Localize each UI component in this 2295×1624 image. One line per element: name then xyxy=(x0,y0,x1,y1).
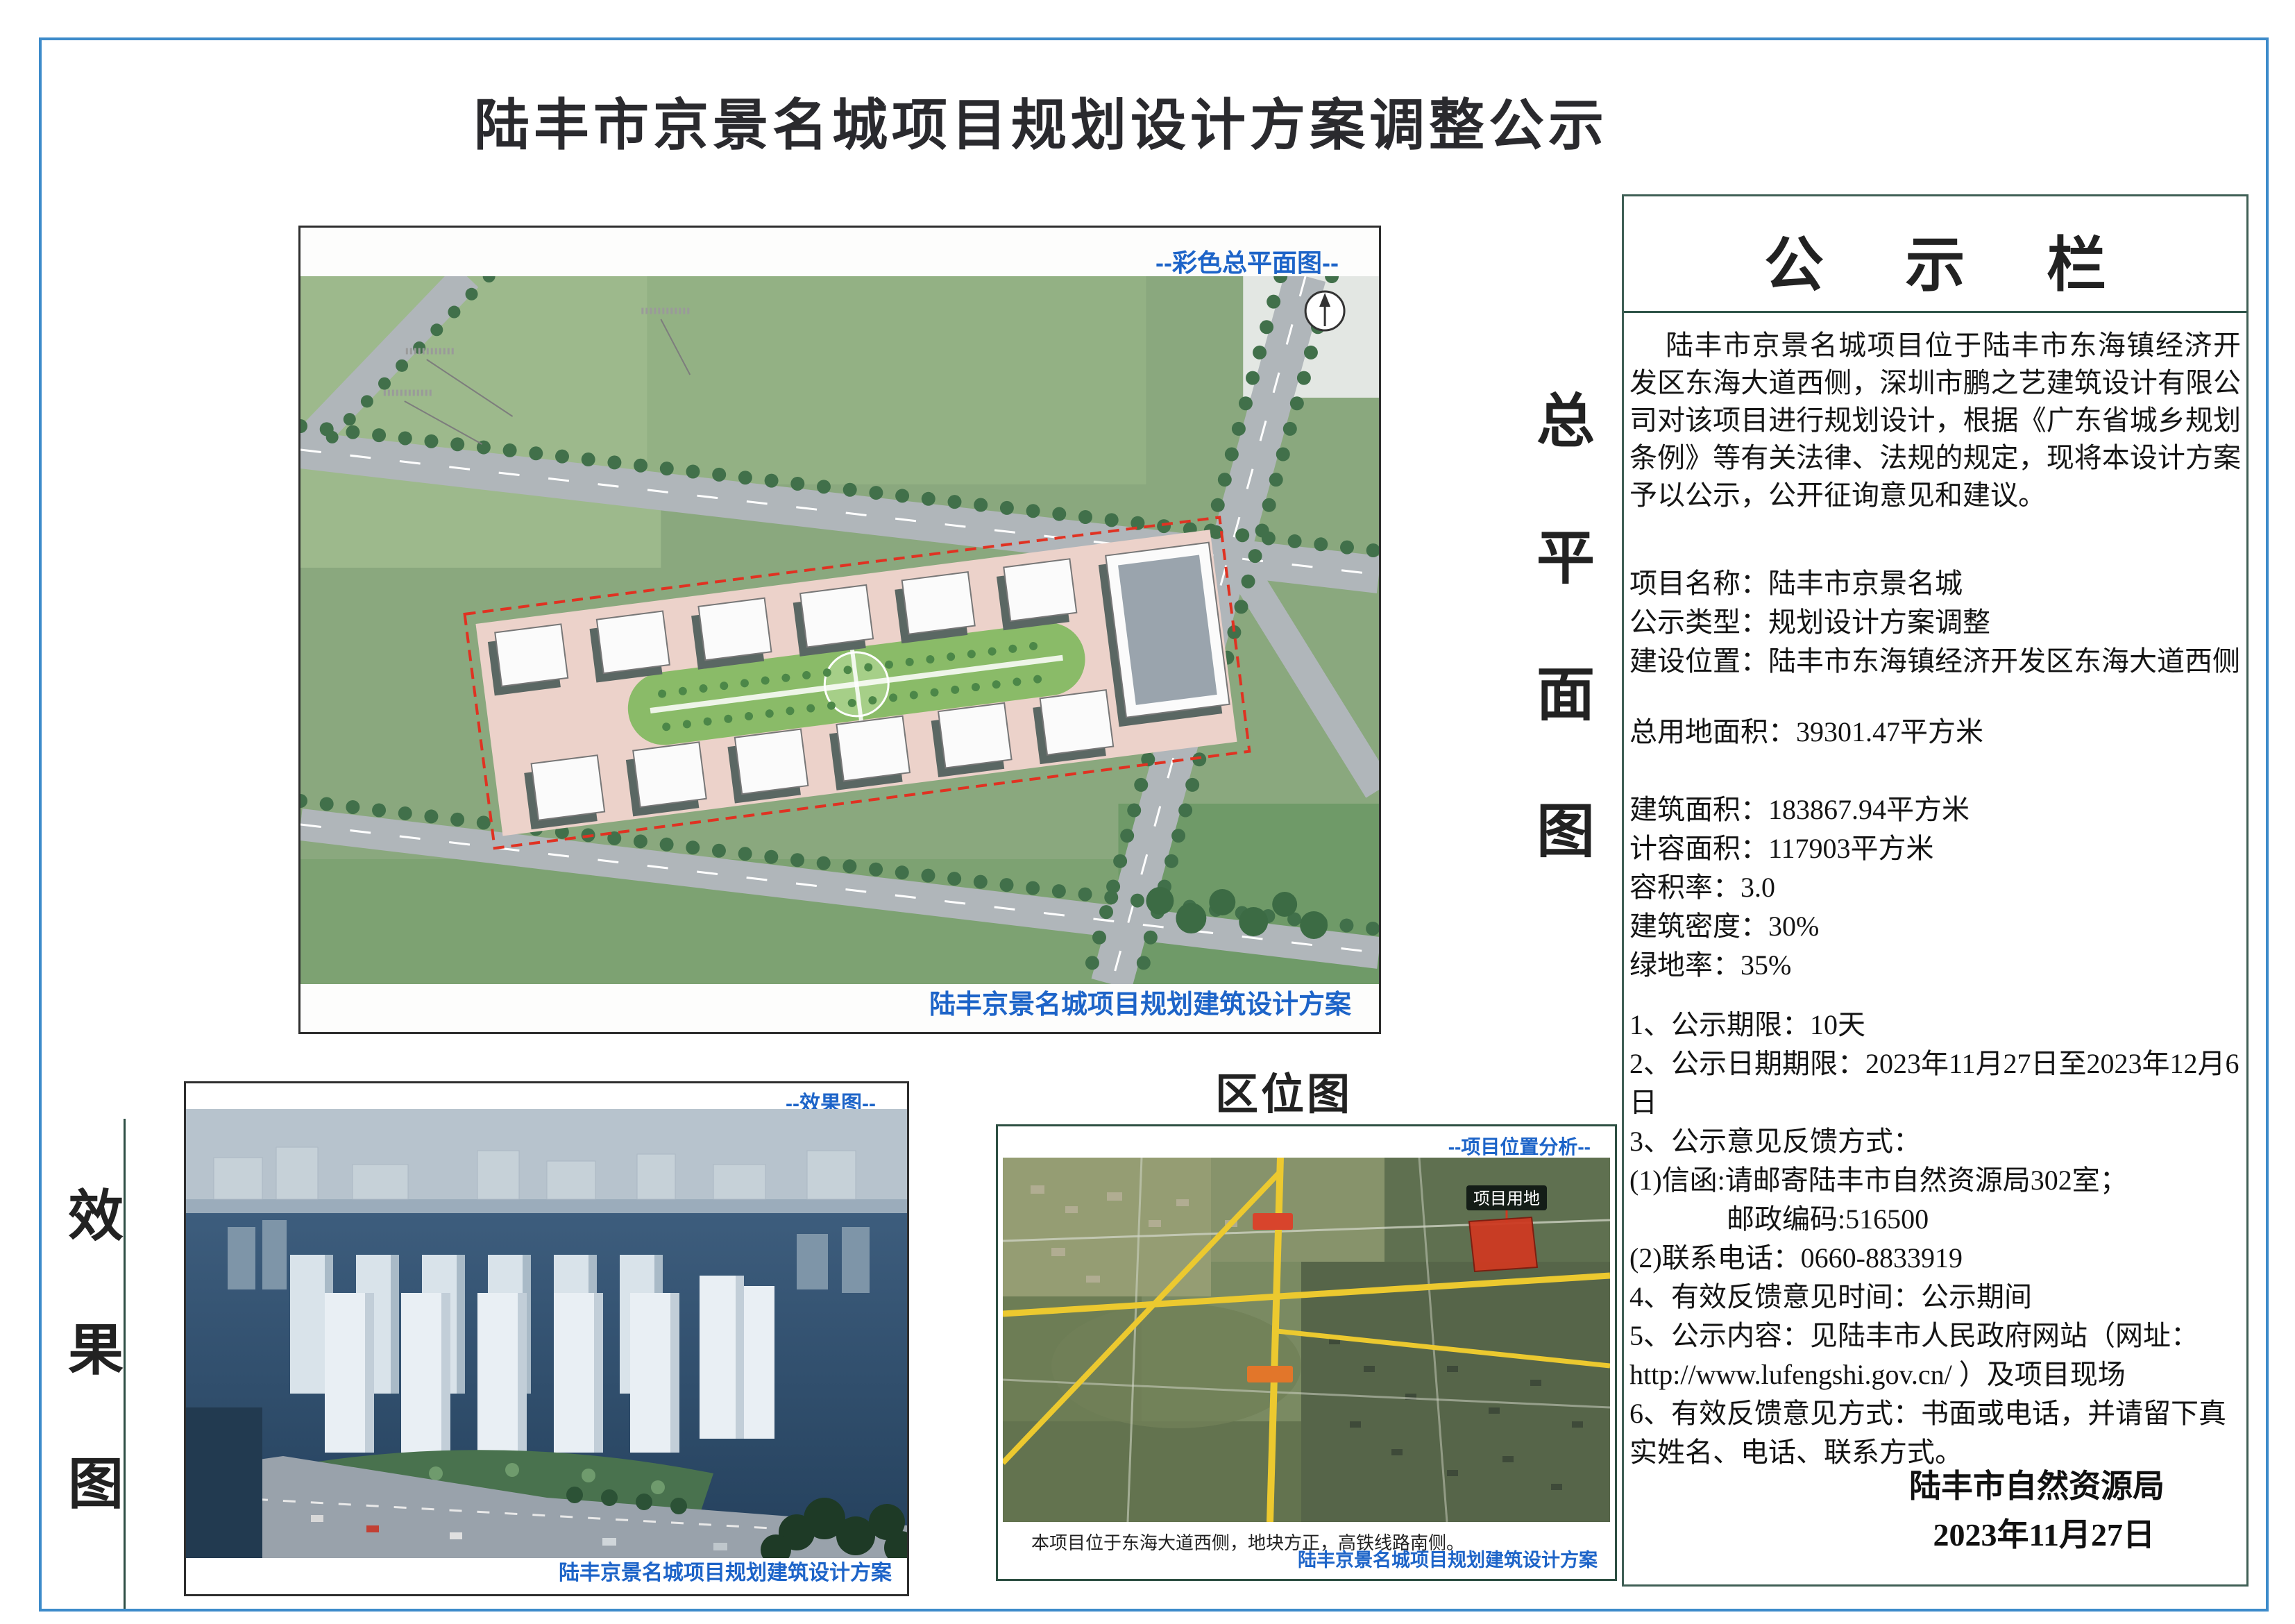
location-map-title: 区位图 xyxy=(1180,1059,1388,1122)
issuing-authority: 陆丰市自然资源局 xyxy=(1909,1461,2165,1507)
notice-detail-lines: 项目名称：陆丰市京景名城 公示类型：规划设计方案调整 建设位置：陆丰市东海镇经济… xyxy=(1629,564,2241,1472)
location-caption: 陆丰京景名城项目规划建筑设计方案 xyxy=(1298,1545,1598,1572)
effect-side-label: 效 果 图 xyxy=(65,1172,126,1520)
notice-line: 公示类型：规划设计方案调整 xyxy=(1629,603,2241,642)
notice-line: 3、公示意见反馈方式： xyxy=(1629,1122,2241,1161)
notice-line: 建筑面积：183867.94平方米 xyxy=(1629,790,2241,829)
notice-header-divider xyxy=(1624,311,2246,313)
notice-line: 邮政编码:516500 xyxy=(1629,1200,2241,1239)
side-label-char: 图 xyxy=(1534,785,1598,869)
planning-notice-sheet: 陆丰市京景名城项目规划设计方案调整公示 --彩色总平面图-- xyxy=(0,0,2295,1624)
side-label-char: 效 xyxy=(65,1172,126,1252)
notice-line: (1)信函:请邮寄陆丰市自然资源局302室； xyxy=(1629,1161,2241,1200)
effect-label-divider xyxy=(124,1119,126,1609)
side-label-char: 平 xyxy=(1534,511,1598,595)
notice-line: 容积率：3.0 xyxy=(1629,868,2241,907)
effect-caption: 陆丰京景名城项目规划建筑设计方案 xyxy=(559,1555,892,1586)
notice-line: 5、公示内容：见陆丰市人民政府网站（网址： http://www.lufengs… xyxy=(1629,1317,2241,1394)
notice-line: 计容面积：117903平方米 xyxy=(1629,829,2241,868)
side-label-char: 面 xyxy=(1534,648,1598,732)
location-map-drawing: 项目用地 xyxy=(1003,1158,1610,1522)
effect-panel: --效果图-- xyxy=(184,1081,909,1596)
notice-board-panel: 公 示 栏 陆丰市京景名城项目位于陆丰市东海镇经济开发区东海大道西侧，深圳市鹏之… xyxy=(1622,194,2249,1587)
notice-line: 项目名称：陆丰市京景名城 xyxy=(1629,564,2241,603)
map-road-tag xyxy=(1253,1213,1293,1230)
master-plan-drawing xyxy=(300,276,1379,984)
notice-line: 总用地面积：39301.47平方米 xyxy=(1629,713,2241,752)
location-corner-label: --项目位置分析-- xyxy=(1448,1132,1591,1160)
master-plan-panel: --彩色总平面图-- xyxy=(298,226,1381,1034)
notice-line: 建设位置：陆丰市东海镇经济开发区东海大道西侧 xyxy=(1629,642,2241,681)
compass-icon xyxy=(1305,291,1344,330)
location-map-panel: --项目位置分析-- xyxy=(996,1124,1617,1581)
notice-board-title: 公 示 栏 xyxy=(1624,216,2246,303)
side-label-char: 果 xyxy=(65,1305,126,1386)
notice-line: 建筑密度：30% xyxy=(1629,907,2241,946)
side-label-char: 总 xyxy=(1534,375,1598,459)
notice-line: (2)联系电话：0660-8833919 xyxy=(1629,1239,2241,1278)
notice-line: 绿地率：35% xyxy=(1629,946,2241,985)
map-road-tag xyxy=(1247,1366,1293,1382)
master-plan-side-label: 总 平 面 图 xyxy=(1534,375,1598,869)
map-site-tag-text: 项目用地 xyxy=(1473,1190,1540,1208)
notice-line: 1、公示期限：10天 xyxy=(1629,1006,2241,1044)
effect-dark-corner xyxy=(186,1407,262,1558)
notice-intro-paragraph: 陆丰市京景名城项目位于陆丰市东海镇经济开发区东海大道西侧，深圳市鹏之艺建筑设计有… xyxy=(1629,327,2241,514)
issue-date: 2023年11月27日 xyxy=(1933,1509,2155,1555)
master-plan-caption: 陆丰京景名城项目规划建筑设计方案 xyxy=(929,983,1351,1021)
notice-line: 4、有效反馈意见时间：公示期间 xyxy=(1629,1278,2241,1317)
notice-line: 2、公示日期期限：2023年11月27日至2023年12月6日 xyxy=(1629,1044,2241,1122)
page-title: 陆丰市京景名城项目规划设计方案调整公示 xyxy=(0,81,2082,161)
master-plan-corner-label: --彩色总平面图-- xyxy=(1155,243,1339,279)
side-label-char: 图 xyxy=(65,1439,126,1520)
effect-drawing xyxy=(186,1109,907,1558)
